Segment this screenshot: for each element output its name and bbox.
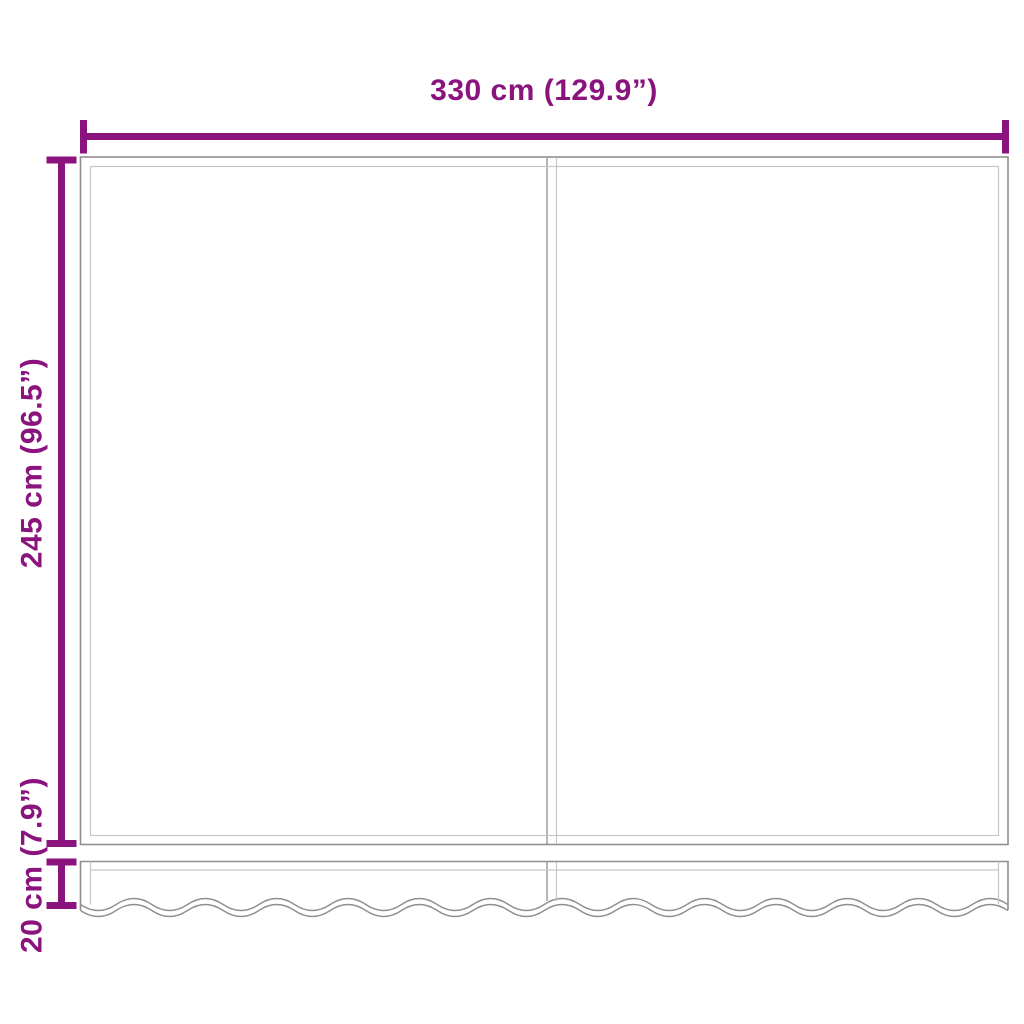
height-dimension-label: 245 cm (96.5”) — [16, 358, 49, 568]
fabric-panel-inner-hem — [91, 167, 999, 836]
product-dimension-image: 330 cm (129.9”) 245 cm (96.5”) 20 cm (7.… — [0, 0, 1024, 1024]
dimension-diagram: 330 cm (129.9”) 245 cm (96.5”) 20 cm (7.… — [0, 0, 1024, 1024]
fabric-outline-dark — [81, 157, 1009, 917]
fabric-outline-light — [91, 158, 999, 905]
valance-outer-border — [81, 862, 1009, 911]
fabric-panel-outer-border — [81, 157, 1009, 845]
dimension-lines — [47, 120, 1006, 906]
dimension-labels: 330 cm (129.9”) 245 cm (96.5”) 20 cm (7.… — [16, 74, 658, 953]
width-dimension-label: 330 cm (129.9”) — [430, 74, 658, 107]
valance-dimension-label: 20 cm (7.9”) — [16, 777, 49, 953]
